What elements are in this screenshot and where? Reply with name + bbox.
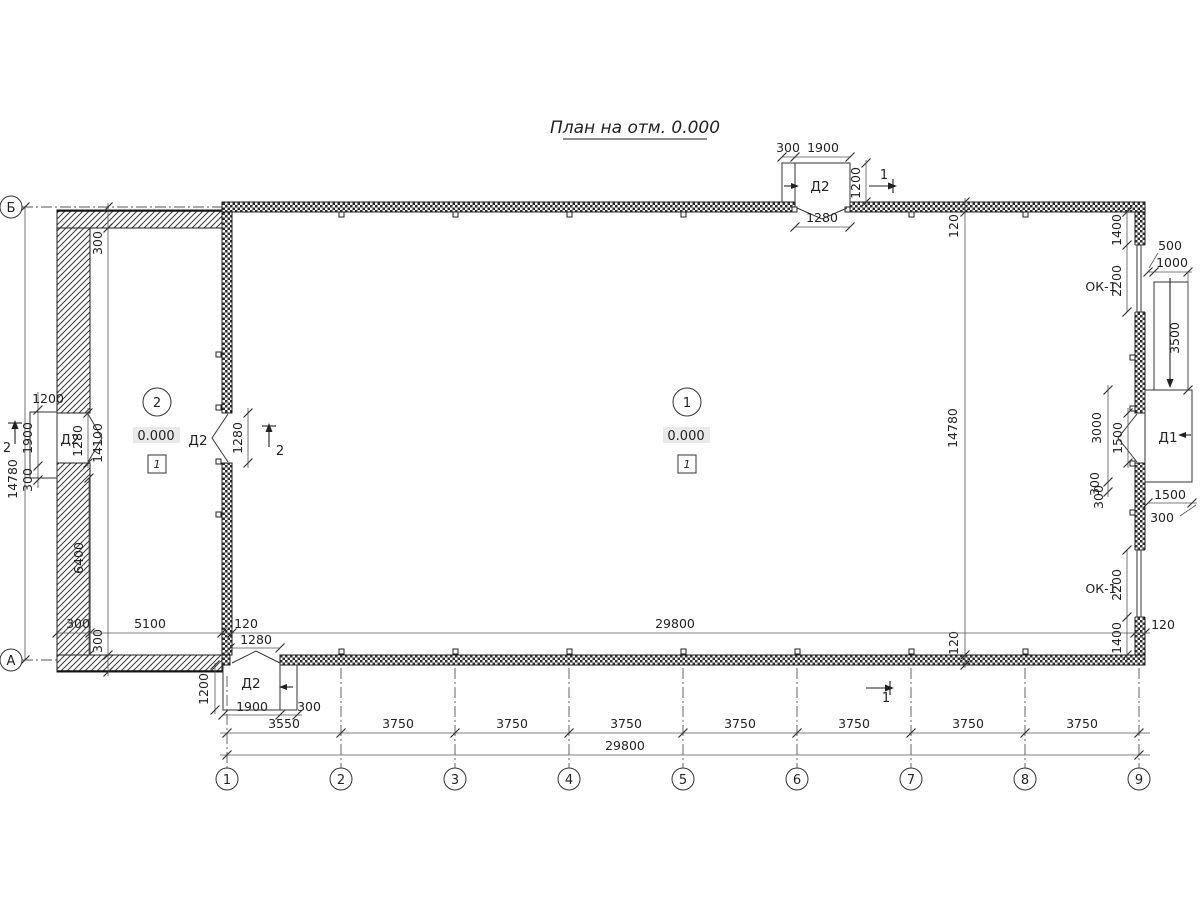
- dim-label: 300: [90, 231, 105, 255]
- dim-label: 29800: [605, 738, 645, 753]
- section-label: 1: [880, 168, 888, 183]
- dim-label: 3750: [952, 716, 984, 731]
- window-tag: ОК-1: [1085, 581, 1116, 596]
- dim-label: 14780: [945, 408, 960, 448]
- dim-label: 1400: [1109, 214, 1124, 246]
- door-tag: Д2: [810, 179, 829, 195]
- ramp: 3500: [1154, 272, 1193, 395]
- window-tag: ОК-1: [1085, 279, 1116, 294]
- floor-level: 0.000: [667, 429, 704, 444]
- axis-label: 9: [1135, 773, 1143, 788]
- dim-label: 300: [1150, 510, 1174, 525]
- dim-label: 3750: [838, 716, 870, 731]
- bottom-spacing-dims: 3550 3750 3750 3750 3750 3750 3750 3750: [220, 716, 1150, 738]
- room-number: 1: [683, 396, 691, 411]
- door-tag: Д2: [188, 433, 207, 449]
- dim-label: 5100: [134, 616, 166, 631]
- dim-label: 1280: [230, 422, 245, 454]
- floor-plan-drawing: План на отм. 0.000: [0, 0, 1200, 900]
- door-tag: Д1: [1158, 430, 1177, 446]
- axis-label: 8: [1021, 773, 1029, 788]
- dim-label: 120: [946, 214, 961, 238]
- dim-label: 1000: [1156, 255, 1188, 270]
- right-bottom-dims: 2200 1400 ОК-1: [1085, 546, 1131, 661]
- section-label: 1: [882, 691, 890, 706]
- grid-column-bubbles: 1 2 3 4 5 6 7 8 9: [216, 768, 1150, 790]
- plan-canvas: План на отм. 0.000: [0, 0, 1200, 900]
- dim-label: 1200: [196, 673, 211, 705]
- dim-label: 1280: [806, 210, 838, 225]
- axis-label: Б: [7, 201, 16, 216]
- grid-row-bubbles: Б А: [0, 196, 22, 671]
- dim-label: 1280: [70, 425, 85, 457]
- dim-label: 120: [946, 631, 961, 655]
- dim-label: 3000: [1089, 412, 1104, 444]
- section-mark-2-mid: 2: [262, 423, 284, 459]
- axis-label: А: [7, 654, 16, 669]
- dim-label: 14780: [5, 459, 20, 499]
- floor-type: 1: [684, 458, 691, 471]
- door-d2-top: 300 1900 1200 Д2 1280: [776, 140, 870, 232]
- door-d2-bottom: Д2 1280 1200 1900 300: [196, 632, 321, 720]
- dim-label: 6400: [71, 542, 86, 574]
- dim-label: 300: [297, 699, 321, 714]
- floor-type: 1: [154, 458, 161, 471]
- dim-label: 3750: [382, 716, 414, 731]
- section-mark-1-bottom: 1: [866, 681, 894, 706]
- dim-label: 3550: [268, 716, 300, 731]
- dim-label: 300: [20, 468, 35, 492]
- room-number: 2: [153, 396, 161, 411]
- dim-label: 1500: [1154, 487, 1186, 502]
- dim-label: 14100: [90, 423, 105, 463]
- dim-label: 3750: [1066, 716, 1098, 731]
- axis-label: 7: [907, 773, 915, 788]
- door-tag: Д2: [241, 676, 260, 692]
- dim-label: 300: [776, 140, 800, 155]
- axis-label: 6: [793, 773, 801, 788]
- dim-label: 1900: [20, 422, 35, 454]
- dim-label: 3750: [724, 716, 756, 731]
- dim-label: 1900: [807, 140, 839, 155]
- drawing-title: План на отм. 0.000: [550, 118, 720, 139]
- title-text: План на отм. 0.000: [550, 118, 720, 138]
- room-1-labels: 1 0.000 1: [663, 388, 710, 473]
- dim-label: 1200: [848, 167, 863, 199]
- dim-label: 1500: [1110, 422, 1125, 454]
- dim-label: 3750: [610, 716, 642, 731]
- axis-label: 5: [679, 773, 687, 788]
- axis-label: 4: [565, 773, 573, 788]
- interior-height-dims: 120 14780 120: [945, 198, 970, 670]
- dim-label: 120: [1151, 617, 1175, 632]
- dim-label: 1200: [32, 391, 64, 406]
- window-ok1-top: [1134, 245, 1146, 312]
- axis-label: 3: [451, 773, 459, 788]
- axis-label: 1: [223, 773, 231, 788]
- dim-label: 500: [1158, 238, 1182, 253]
- section-mark-1-top: 1: [869, 168, 897, 193]
- dim-label: 3500: [1167, 322, 1182, 354]
- dim-label: 29800: [655, 616, 695, 631]
- dim-label: 1280: [240, 632, 272, 647]
- interior-width-dims: 300 5100 120 29800 120: [53, 616, 1175, 638]
- dim-label: 1400: [1109, 622, 1124, 654]
- section-label: 2: [276, 444, 284, 459]
- dim-label: 300: [66, 616, 90, 631]
- room-2-labels: 2 0.000 1: [133, 388, 180, 473]
- dim-label: 120: [234, 616, 258, 631]
- grid-axis-lines: [22, 207, 1139, 768]
- dim-label: 3750: [496, 716, 528, 731]
- section-label: 2: [3, 441, 11, 456]
- dim-label: 300: [1091, 485, 1106, 509]
- axis-label: 2: [337, 773, 345, 788]
- floor-level: 0.000: [137, 429, 174, 444]
- dim-label: 1900: [236, 699, 268, 714]
- window-ok1-bottom: [1134, 550, 1146, 617]
- bottom-total-dim: 29800: [220, 738, 1150, 760]
